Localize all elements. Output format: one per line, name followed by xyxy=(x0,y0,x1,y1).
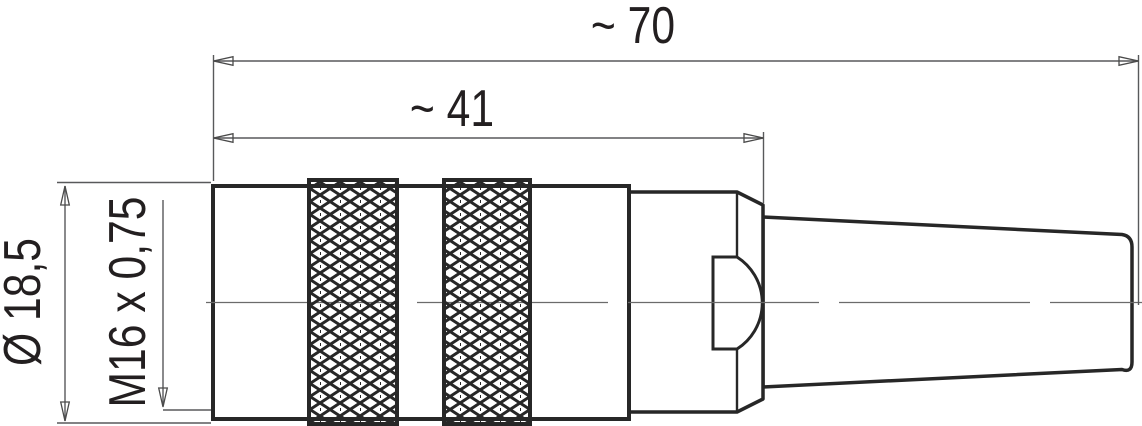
dim-thread-label: M16 x 0,75 xyxy=(99,197,157,408)
knurl-band-1 xyxy=(309,180,397,424)
dim-thread xyxy=(159,200,211,410)
technical-drawing: ~ 70 ~ 41 Ø 18,5 M16 x 0,75 xyxy=(0,0,1142,426)
knurl-band-2 xyxy=(444,180,530,424)
dim-body-length-label: ~ 41 xyxy=(410,80,494,138)
drawing-canvas: ~ 70 ~ 41 Ø 18,5 M16 x 0,75 xyxy=(0,0,1142,426)
dim-diameter-label: Ø 18,5 xyxy=(0,238,52,366)
dim-overall-length-label: ~ 70 xyxy=(591,0,675,55)
